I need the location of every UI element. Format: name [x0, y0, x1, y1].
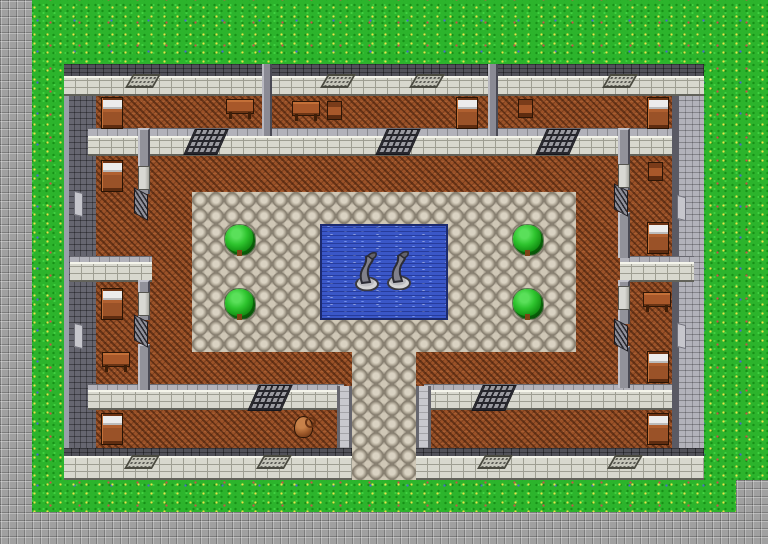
wall-horizontal: [424, 384, 672, 410]
cobblestone-courtyard: [352, 352, 416, 480]
bush-sprite: [512, 288, 544, 320]
wall-horizontal: [88, 384, 344, 410]
stone-path: [736, 480, 768, 512]
door-slab: [138, 292, 150, 316]
path-side-wall: [337, 386, 352, 454]
wall-decoration: [677, 323, 686, 349]
stone-path: [0, 0, 32, 544]
bed-sprite: [101, 97, 123, 129]
statue-sprite: [386, 250, 414, 290]
wall-brick-face: [70, 262, 152, 282]
wall-top-surface: [416, 448, 704, 456]
door-slab: [138, 166, 150, 190]
bed-sprite: [647, 413, 669, 445]
room-divider-wall: [262, 64, 272, 136]
bush-sprite: [224, 288, 256, 320]
wall-vertical-thin: [618, 346, 630, 388]
door-slab: [618, 164, 630, 188]
wall-horizontal: [70, 256, 152, 282]
wall-top-surface: [64, 448, 352, 456]
game-viewport[interactable]: [0, 0, 768, 544]
bush-sprite: [224, 224, 256, 256]
wall-brick-face: [620, 262, 694, 282]
bed-sprite: [101, 288, 123, 320]
bush-sprite: [512, 224, 544, 256]
wall-decoration: [74, 191, 83, 217]
wall-brick-face: [88, 390, 344, 410]
bed-sprite: [101, 160, 123, 192]
chair-sprite: [327, 101, 342, 120]
wall-horizontal: [64, 448, 352, 480]
bed-sprite: [456, 97, 478, 129]
table-sprite: [226, 99, 254, 114]
bed-sprite: [101, 413, 123, 445]
bed-sprite: [647, 222, 669, 254]
wall-vertical-thin: [618, 212, 630, 258]
chair-sprite: [518, 99, 533, 118]
chair-sprite: [648, 162, 663, 181]
wall-horizontal: [416, 448, 704, 480]
wall-top-surface: [88, 128, 672, 136]
water-pool: [320, 224, 448, 320]
path-side-wall: [416, 386, 431, 454]
pot-sprite: [294, 416, 313, 438]
wall-vertical-thin: [138, 344, 150, 390]
bed-sprite: [647, 351, 669, 383]
table-sprite: [292, 101, 320, 116]
table-sprite: [102, 352, 130, 367]
wall-horizontal: [620, 256, 694, 282]
statue-sprite: [354, 251, 382, 291]
wall-brick-face: [416, 456, 704, 480]
bed-sprite: [647, 97, 669, 129]
wall-decoration: [677, 195, 686, 221]
stone-path: [0, 512, 768, 544]
wall-decoration: [74, 323, 83, 349]
table-sprite: [643, 292, 671, 307]
wall-brick-face: [64, 456, 352, 480]
room-divider-wall: [488, 64, 498, 136]
wall-brick-face: [424, 390, 672, 410]
door-slab: [618, 286, 630, 310]
